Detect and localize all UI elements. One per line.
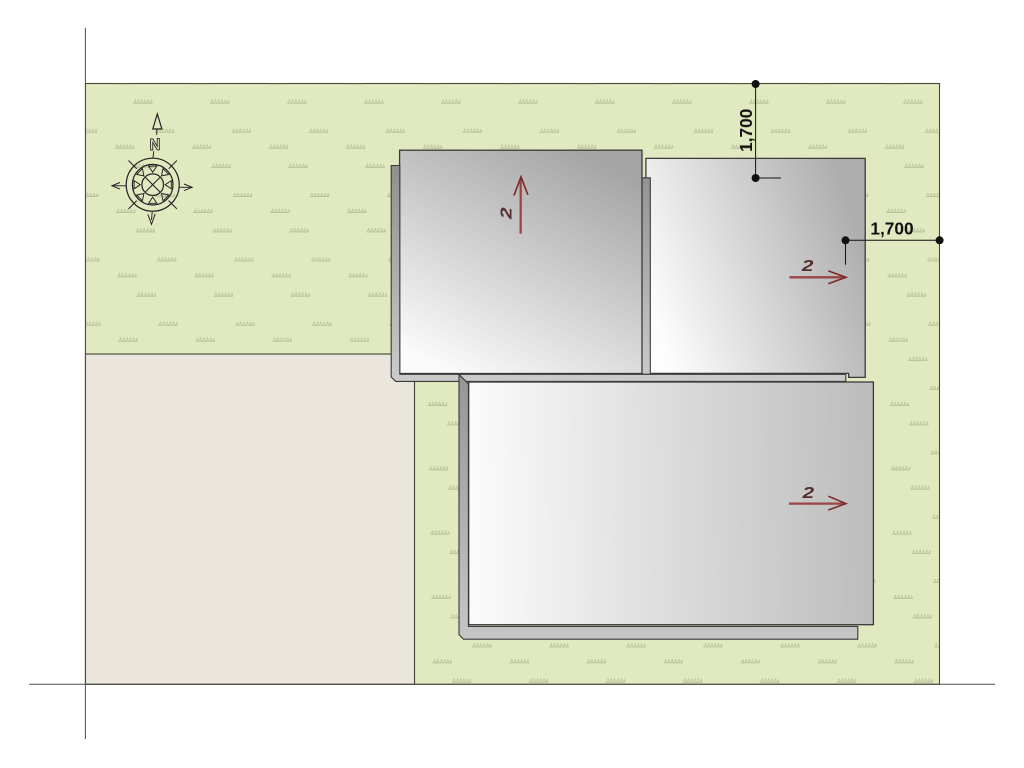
svg-text:1,700: 1,700	[870, 218, 913, 238]
svg-text:2: 2	[801, 483, 814, 501]
svg-text:2: 2	[801, 256, 814, 274]
svg-text:1,700: 1,700	[736, 109, 756, 152]
svg-text:2: 2	[497, 207, 515, 220]
